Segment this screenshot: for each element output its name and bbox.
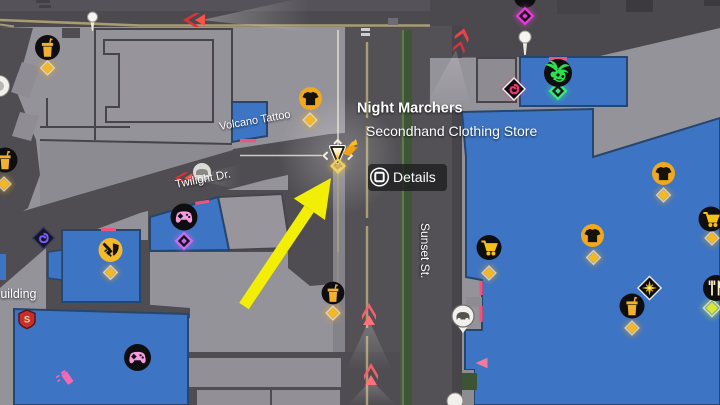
svg-text:Sunset St.: Sunset St. <box>418 223 432 278</box>
svg-text:Night Marchers: Night Marchers <box>357 101 463 117</box>
svg-text:Building: Building <box>0 287 37 301</box>
svg-text:Details: Details <box>393 169 436 185</box>
svg-text:S: S <box>24 315 30 326</box>
svg-text:Secondhand Clothing Store: Secondhand Clothing Store <box>366 123 537 139</box>
